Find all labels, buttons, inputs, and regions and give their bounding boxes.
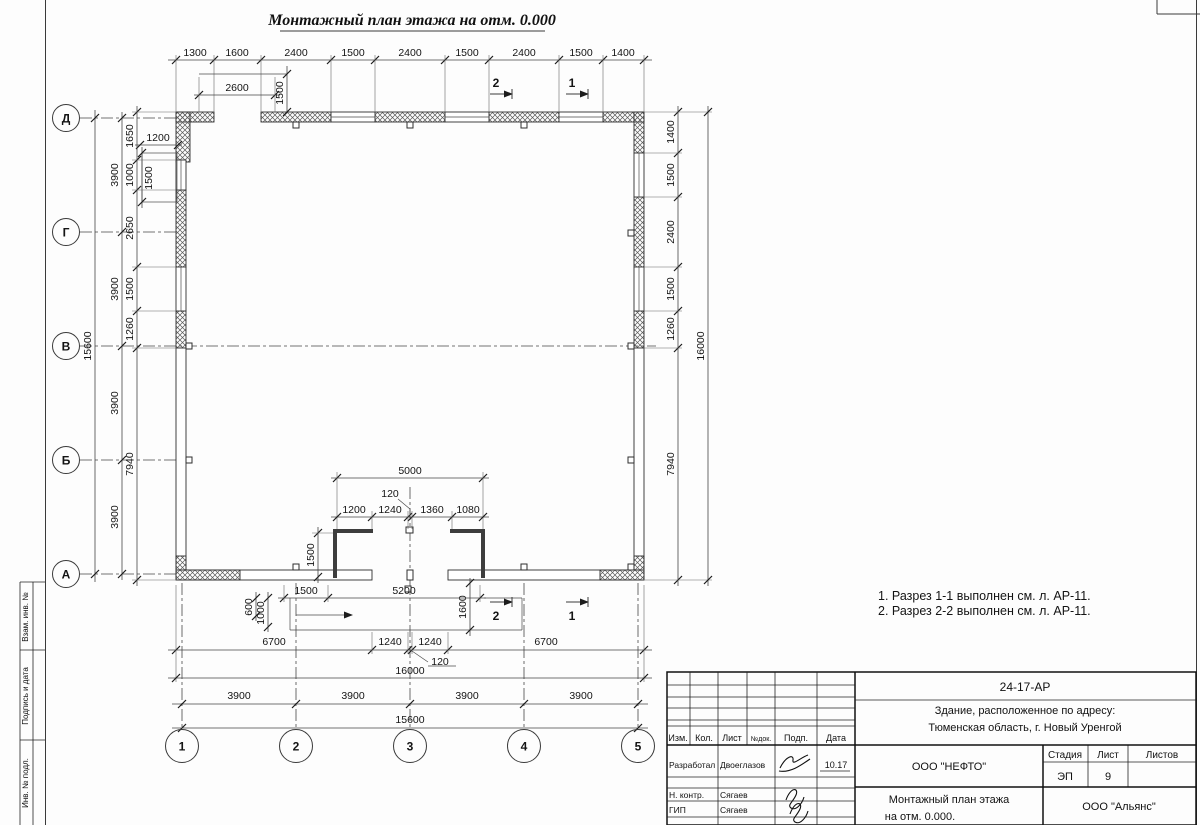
dim-label: 3900 <box>227 690 251 702</box>
signature <box>779 755 810 771</box>
dim-label: 1400 <box>611 47 635 59</box>
stamp-object-line2: Тюменская область, г. Новый Уренгой <box>928 722 1121 734</box>
stamp-col-kol: Кол. <box>695 733 713 743</box>
stamp-col-podp: Подп. <box>784 733 808 743</box>
axis-bubbles-rows: Д Г В Б А <box>53 105 80 588</box>
stamp-drawing-title2: на отм. 0.000. <box>885 811 955 823</box>
dim-label: 1200 <box>146 132 170 144</box>
title-block: Изм. Кол. Лист №док. Подп. Дата Разработ… <box>667 672 1196 825</box>
axis-label: 3 <box>407 740 414 754</box>
stamp-name: Двоеглазов <box>720 760 766 770</box>
dim-label: 3900 <box>569 690 593 702</box>
dim-label: 3900 <box>109 277 121 301</box>
dim-label: 5200 <box>392 585 416 597</box>
stamp-sheet-value: 9 <box>1105 771 1111 783</box>
axis-label: В <box>62 340 71 354</box>
dim-label: 2600 <box>225 82 249 94</box>
dim-label: 600 <box>243 598 255 616</box>
dim-label: 16000 <box>695 331 707 360</box>
dim-label: 1500 <box>665 163 677 187</box>
stamp-col-list: Лист <box>722 733 742 743</box>
dim-label: 1200 <box>342 504 366 516</box>
dim-label: 5000 <box>398 465 422 477</box>
stamp-role: Разработал <box>669 760 715 770</box>
margin-strip: Взам. инв. № Подпись и дата Инв. № подл. <box>20 582 45 825</box>
dim-label: 1000 <box>255 601 267 625</box>
dim-label: 1240 <box>418 636 442 648</box>
dim-label: 2400 <box>665 220 677 244</box>
dim-right-total: 16000 <box>695 106 712 586</box>
stamp-org: ООО "Альянс" <box>1082 801 1156 813</box>
stamp-name: Сягаев <box>720 805 748 815</box>
dim-label: 7940 <box>665 452 677 476</box>
note-line: 2. Разрез 2-2 выполнен см. л. АР-11. <box>878 604 1091 618</box>
dim-vestibule: 5000 1200 1240 1360 1080 120 1500 <box>305 465 489 583</box>
dim-label: 1600 <box>225 47 249 59</box>
margin-label-inv: Инв. № подл. <box>21 758 30 808</box>
dim-label: 1240 <box>378 504 402 516</box>
notes: 1. Разрез 1-1 выполнен см. л. АР-11. 2. … <box>878 589 1091 618</box>
note-line: 1. Разрез 1-1 выполнен см. л. АР-11. <box>878 589 1091 603</box>
dim-label: 1400 <box>665 120 677 144</box>
dim-label: 3900 <box>109 163 121 187</box>
axis-label: 2 <box>293 740 300 754</box>
axis-label: Г <box>63 226 70 240</box>
stamp-sheets-label: Листов <box>1146 750 1179 761</box>
stamp-role: ГИП <box>669 805 686 815</box>
dim-label: 2400 <box>398 47 422 59</box>
plan-canvas: Взам. инв. № Подпись и дата Инв. № подл.… <box>0 0 1200 825</box>
dim-label: 2400 <box>284 47 308 59</box>
stamp-stage-value: ЭП <box>1057 771 1073 783</box>
margin-label-vzam: Взам. инв. № <box>21 592 30 642</box>
dim-label: 6700 <box>262 636 286 648</box>
axis-label: Д <box>62 112 71 126</box>
section-marks: 2 1 2 1 <box>490 76 589 623</box>
drawing-title: Монтажный план этажа на отм. 0.000 <box>267 12 556 31</box>
dim-label: 2650 <box>124 216 136 240</box>
drawing-sheet: Взам. инв. № Подпись и дата Инв. № подл.… <box>0 0 1200 825</box>
sheet-frame <box>46 0 1200 825</box>
dim-label: 120 <box>381 488 399 500</box>
stamp-doc-code: 24-17-АР <box>1000 680 1051 694</box>
dim-label: 1500 <box>569 47 593 59</box>
dim-label: 1500 <box>294 585 318 597</box>
axis-label: 1 <box>179 740 186 754</box>
dim-label: 16000 <box>395 665 424 677</box>
dim-label: 2400 <box>512 47 536 59</box>
column-marks <box>186 122 634 592</box>
dim-label: 3900 <box>341 690 365 702</box>
dim-bottom-total: 16000 <box>168 665 652 682</box>
corner-pier <box>176 112 190 162</box>
stamp-sheet-label: Лист <box>1097 750 1119 761</box>
stamp-col-dok: №док. <box>751 736 772 743</box>
axis-bubbles-cols: 1 2 3 4 5 <box>166 730 655 763</box>
section-mark-label: 1 <box>569 609 576 623</box>
dim-label: 7940 <box>124 452 136 476</box>
dim-label: 1500 <box>455 47 479 59</box>
dim-label: 6700 <box>534 636 558 648</box>
stamp-role: Н. контр. <box>669 790 704 800</box>
dim-label: 3900 <box>455 690 479 702</box>
section-mark-label: 1 <box>569 76 576 90</box>
stamp-object-line1: Здание, расположенное по адресу: <box>935 705 1116 717</box>
dim-label: 1650 <box>124 124 136 148</box>
dim-label: 1600 <box>457 595 469 619</box>
dim-window-well: 1200 1500 <box>135 132 182 208</box>
dim-label: 1500 <box>274 81 286 105</box>
dim-label: 1080 <box>456 504 480 516</box>
dim-label: 1260 <box>665 317 677 341</box>
dim-label: 1500 <box>341 47 365 59</box>
dim-label: 1000 <box>124 163 136 187</box>
stamp-company: ООО "НЕФТО" <box>912 761 986 773</box>
dim-label: 3900 <box>109 505 121 529</box>
dim-label: 15600 <box>82 331 94 360</box>
dim-entry: 1500 5200 600 1000 1600 <box>243 578 486 636</box>
axis-label: А <box>62 568 71 582</box>
section-mark-label: 2 <box>493 76 500 90</box>
dim-gate: 2600 1500 <box>194 66 291 116</box>
dim-top-chain: 1300 1600 2400 1500 2400 1500 2400 1500 … <box>168 47 652 112</box>
porch <box>290 598 522 630</box>
axis-label: 4 <box>521 740 528 754</box>
plan-walls <box>142 112 644 630</box>
axis-lines <box>80 118 656 729</box>
dim-label: 1500 <box>124 277 136 301</box>
door-center-post <box>407 570 413 580</box>
stamp-stage-label: Стадия <box>1048 750 1082 761</box>
dim-label: 1300 <box>183 47 207 59</box>
dim-label: 1500 <box>305 543 317 567</box>
dim-label: 1240 <box>378 636 402 648</box>
stamp-drawing-title1: Монтажный план этажа <box>889 794 1010 806</box>
axis-label: 5 <box>635 740 642 754</box>
section-mark-label: 2 <box>493 609 500 623</box>
margin-label-podpis: Подпись и дата <box>21 667 30 725</box>
axis-label: Б <box>62 454 71 468</box>
page-title: Монтажный план этажа на отм. 0.000 <box>267 12 556 29</box>
stamp-name: Сягаев <box>720 790 748 800</box>
dim-label: 1360 <box>420 504 444 516</box>
top-windows <box>331 112 603 122</box>
stamp-date: 10.17 <box>825 760 848 770</box>
dim-label: 1500 <box>665 277 677 301</box>
dim-label: 3900 <box>109 391 121 415</box>
stamp-col-izm: Изм. <box>668 733 687 743</box>
dim-label: 1260 <box>124 317 136 341</box>
stamp-col-data: Дата <box>826 733 846 743</box>
dim-label: 1500 <box>143 166 155 190</box>
dim-label: 15600 <box>395 714 424 726</box>
